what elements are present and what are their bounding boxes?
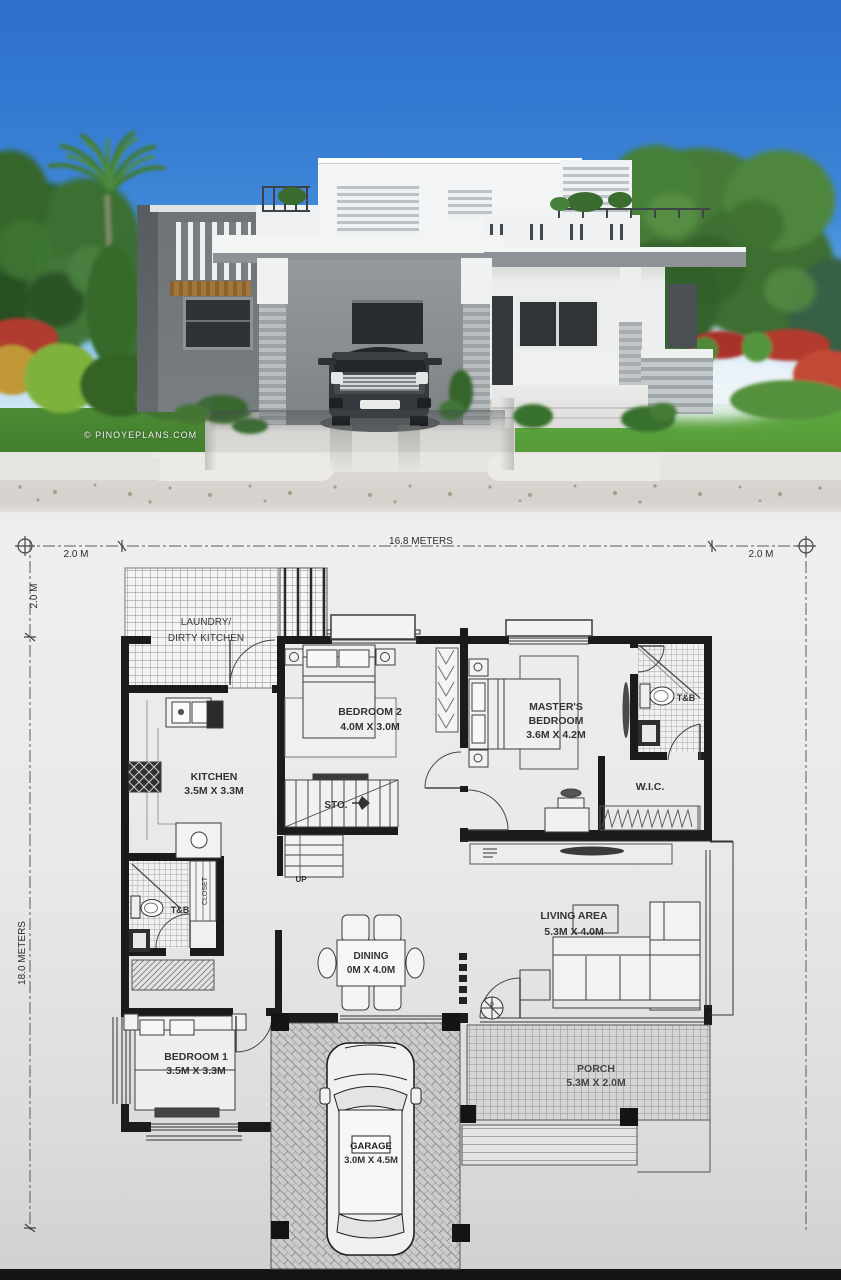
svg-text:LIVING AREA: LIVING AREA bbox=[540, 910, 608, 922]
svg-text:3.5M X 3.3M: 3.5M X 3.3M bbox=[184, 785, 244, 797]
svg-text:BEDROOM 2: BEDROOM 2 bbox=[338, 706, 402, 718]
svg-text:GARAGE: GARAGE bbox=[350, 1141, 392, 1152]
svg-text:0M X 4.0M: 0M X 4.0M bbox=[347, 965, 395, 976]
svg-text:5.3M X 4.0M: 5.3M X 4.0M bbox=[544, 926, 604, 938]
svg-text:4.0M X 3.0M: 4.0M X 3.0M bbox=[340, 721, 400, 733]
svg-text:T&B: T&B bbox=[677, 693, 696, 703]
svg-text:2.0 M: 2.0 M bbox=[63, 549, 88, 560]
svg-text:STO.: STO. bbox=[324, 800, 347, 811]
svg-text:BEDROOM: BEDROOM bbox=[529, 715, 584, 727]
svg-text:PORCH: PORCH bbox=[577, 1063, 615, 1075]
svg-text:18.0 METERS: 18.0 METERS bbox=[17, 921, 28, 985]
svg-text:DINING: DINING bbox=[354, 951, 389, 962]
svg-text:2.0 M: 2.0 M bbox=[29, 583, 40, 608]
svg-text:T&B: T&B bbox=[171, 905, 190, 915]
svg-text:3.6M X 4.2M: 3.6M X 4.2M bbox=[526, 729, 586, 741]
svg-text:D: D bbox=[490, 1002, 494, 1008]
svg-text:3.0M X 4.5M: 3.0M X 4.5M bbox=[344, 1155, 398, 1166]
svg-text:DIRTY KITCHEN: DIRTY KITCHEN bbox=[168, 633, 244, 644]
svg-text:MASTER'S: MASTER'S bbox=[529, 701, 583, 713]
svg-text:UP: UP bbox=[295, 875, 307, 884]
svg-text:16.8 METERS: 16.8 METERS bbox=[389, 536, 453, 547]
svg-text:CLOSET: CLOSET bbox=[202, 876, 209, 905]
svg-text:W.I.C.: W.I.C. bbox=[636, 781, 665, 793]
svg-text:3.5M X 3.3M: 3.5M X 3.3M bbox=[166, 1065, 226, 1077]
svg-text:BEDROOM 1: BEDROOM 1 bbox=[164, 1051, 228, 1063]
svg-text:5.3M X 2.0M: 5.3M X 2.0M bbox=[566, 1077, 626, 1089]
svg-text:KITCHEN: KITCHEN bbox=[191, 771, 238, 783]
svg-text:2.0 M: 2.0 M bbox=[748, 549, 773, 560]
svg-text:LAUNDRY/: LAUNDRY/ bbox=[181, 617, 232, 628]
